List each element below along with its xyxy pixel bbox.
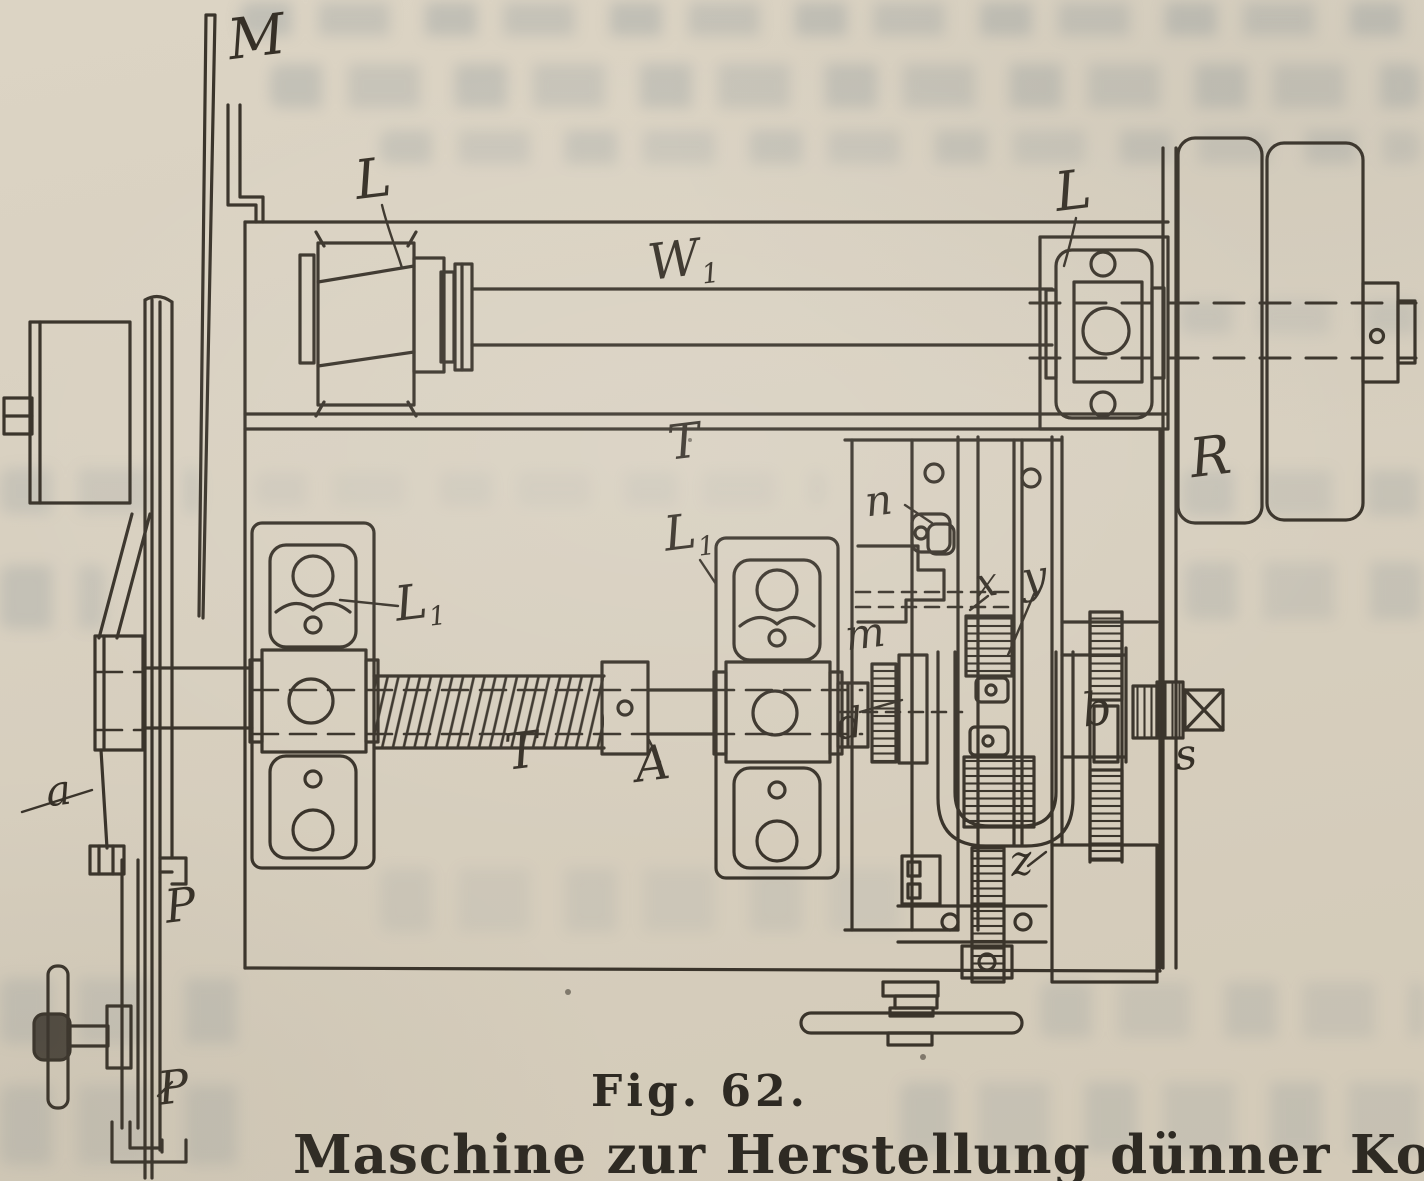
figure-number: Fig. 62. xyxy=(480,1066,920,1117)
scanned-book-page: MLW1LRTL1L1TAnxymdbszaPP Fig. 62. Maschi… xyxy=(0,0,1424,1181)
vertical-screw-z xyxy=(972,848,1004,982)
shaft-w1 xyxy=(472,289,1052,345)
feed-screw-bearing-left-l1 xyxy=(250,523,378,868)
gear-carriage xyxy=(838,437,1223,982)
machine-drawing xyxy=(0,0,1424,1181)
bearing-right xyxy=(1040,237,1168,429)
gear-x xyxy=(966,616,1012,676)
clutch-m xyxy=(872,664,896,762)
handwheel-bottom xyxy=(801,982,1022,1045)
ratchet-b xyxy=(1133,686,1157,738)
shaft-centerlines xyxy=(1030,303,1416,358)
headstock-bearing-left xyxy=(300,232,472,416)
feed-screw-t xyxy=(374,676,604,748)
pulley-r xyxy=(1178,138,1415,523)
gear-lower xyxy=(964,757,1034,827)
board-and-blade-m xyxy=(4,15,263,1178)
label-leaders xyxy=(22,205,1076,1096)
pawl-n-bracket xyxy=(858,546,944,622)
figure-caption: Maschine zur Herstellung dünner Korkbl xyxy=(293,1124,1424,1181)
pedal-linkage-p xyxy=(34,860,186,1162)
feed-screw-bearing-right-l1 xyxy=(714,538,842,878)
coupling-a xyxy=(602,662,716,754)
